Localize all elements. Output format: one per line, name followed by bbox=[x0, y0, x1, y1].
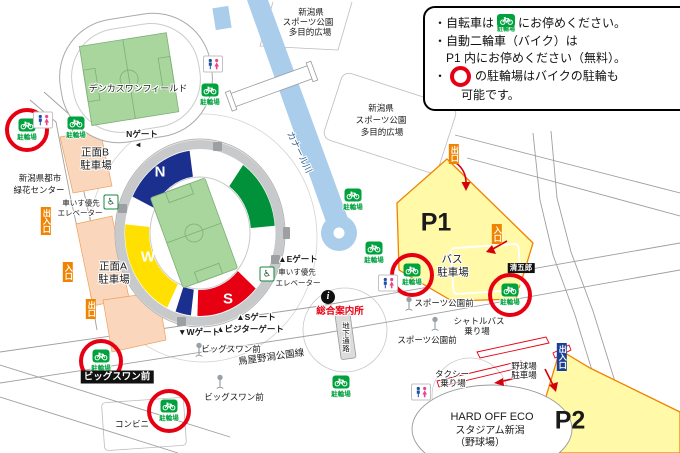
stand-s-letter: S bbox=[223, 291, 233, 308]
bicycle-parking-label: 駐輪場 bbox=[343, 201, 363, 211]
gate-badge: 入口 bbox=[492, 224, 502, 244]
bicycle-parking-icon bbox=[502, 284, 519, 297]
gate-n-label: Nゲート bbox=[126, 128, 158, 140]
gate-badge: 出口 bbox=[86, 299, 96, 319]
eco-stadium-label: （野球場） bbox=[455, 434, 505, 449]
lot-b-label: 駐車場 bbox=[80, 158, 112, 173]
gate-badge: 出入口 bbox=[41, 207, 51, 235]
legend-line2b: P1 内にお停めください（無料）。 bbox=[446, 50, 680, 67]
bicycle-parking-label: 駐輪場 bbox=[364, 254, 384, 264]
restroom-icon bbox=[33, 112, 53, 129]
info-center-label: 総合案内所 bbox=[316, 303, 364, 317]
gate-w-label: ▼Wゲート bbox=[178, 326, 220, 338]
plaza-label: スポーツ公園 bbox=[356, 114, 407, 126]
taxi-label: 乗り場 bbox=[440, 377, 466, 389]
gate-badge: 出入口 bbox=[557, 343, 567, 371]
bus-stop-icon bbox=[216, 375, 225, 390]
elevator-label: エレベーター bbox=[58, 208, 103, 219]
denka-field-label: デンカスワンフィールド bbox=[89, 82, 188, 95]
restroom-icon bbox=[203, 56, 223, 73]
wheelchair-elevator-icon: ♿ bbox=[104, 195, 119, 210]
stand-n-letter: N bbox=[155, 164, 166, 181]
gate-s-label: ▲Sゲート bbox=[236, 311, 276, 323]
gate-n-pointer: ◀ bbox=[136, 142, 141, 149]
bicycle-parking-icon bbox=[161, 400, 178, 413]
gate-badge: 出口 bbox=[449, 144, 459, 164]
elevator-label: 車いす優先 bbox=[278, 267, 316, 278]
bicycle-icon bbox=[497, 14, 515, 27]
greenery-center-label: 新潟県都市 bbox=[19, 172, 62, 184]
bicycle-parking-icon bbox=[68, 117, 85, 130]
baseball-parking-label: 駐車場 bbox=[511, 369, 537, 381]
bicycle-parking-icon: 駐輪場 bbox=[497, 14, 515, 33]
bicycle-parking-label: 駐輪場 bbox=[200, 96, 220, 106]
bus-stop-label: ビッグスワン前 bbox=[201, 343, 261, 355]
red-circle-symbol bbox=[450, 66, 471, 87]
bicycle-parking-label: 駐輪場 bbox=[159, 412, 179, 422]
bus-stop-icon bbox=[431, 317, 440, 332]
legend-box: ・自転車は 駐輪場 にお停めください。 ・自動二輪車（バイク）は P1 内にお停… bbox=[423, 6, 680, 111]
bicycle-parking-label: 駐輪場 bbox=[331, 388, 351, 398]
convenience-store-label: コンビニ bbox=[115, 418, 149, 430]
bicycle-parking-icon bbox=[202, 84, 219, 97]
gate-visitor-label: ▲ビジターゲート bbox=[216, 323, 284, 335]
bicycle-parking-label: 駐輪場 bbox=[402, 276, 422, 286]
information-icon: i bbox=[321, 290, 335, 304]
greenery-center-label: 緑花センター bbox=[13, 184, 64, 196]
p2-label: P2 bbox=[555, 407, 586, 436]
lot-a-label: 駐車場 bbox=[98, 272, 130, 287]
bicycle-parking-icon bbox=[333, 376, 350, 389]
legend-line3a: の駐輪場はバイクの駐輪も bbox=[475, 68, 619, 85]
bus-stop-icon bbox=[405, 297, 414, 312]
bus-stop-label: スポーツ公園前 bbox=[397, 334, 456, 346]
wheelchair-elevator-icon: ♿ bbox=[260, 267, 275, 282]
canal-label: カナール川 bbox=[284, 129, 315, 175]
elevator-label: エレベーター bbox=[276, 278, 321, 289]
bicycle-parking-icon bbox=[366, 242, 383, 255]
bicycle-parking-label: 駐輪場 bbox=[500, 296, 520, 306]
legend-line2a: ・自動二輪車（バイク）は bbox=[434, 33, 680, 50]
gate-e-label: ▲Eゲート bbox=[278, 253, 318, 265]
legend-line3b: 可能です。 bbox=[461, 87, 680, 104]
gate-badge: ビッグスワン前 bbox=[81, 371, 154, 384]
gate-badge: 入口 bbox=[63, 262, 73, 282]
plaza-label: 新潟県 bbox=[368, 102, 394, 114]
shuttle-bus-label: 乗り場 bbox=[464, 325, 490, 337]
bicycle-parking-icon bbox=[404, 264, 421, 277]
bicycle-parking-label: 駐輪場 bbox=[66, 129, 86, 139]
legend-line3-bullet: ・ bbox=[434, 68, 446, 85]
plaza-label: 多目的広場 bbox=[361, 126, 404, 138]
stadium-area-map: 駐輪場駐輪場駐輪場駐輪場駐輪場駐輪場駐輪場駐輪場駐輪場駐輪場♿♿i出入口入口出口… bbox=[0, 0, 680, 453]
stand-e-letter: E bbox=[233, 203, 243, 220]
bicycle-parking-icon bbox=[345, 189, 362, 202]
bicycle-parking-icon bbox=[93, 350, 110, 363]
p1-label: P1 bbox=[421, 209, 452, 238]
plaza-label: 多目的広場 bbox=[289, 26, 332, 38]
underpass-label: 地下通路 bbox=[341, 322, 352, 352]
bicycle-parking-label: 駐輪場 bbox=[17, 131, 37, 141]
restroom-icon bbox=[378, 275, 398, 292]
stand-w-letter: W bbox=[141, 249, 155, 266]
bus-stop-label: ビッグスワン前 bbox=[204, 391, 264, 403]
gate-badge: 清五郎 bbox=[508, 263, 535, 273]
legend-line1-pre: ・自転車は bbox=[434, 15, 494, 32]
bus-parking-label: 駐車場 bbox=[437, 265, 469, 280]
restroom-icon bbox=[411, 384, 431, 401]
bus-stop-label: スポーツ公園前 bbox=[414, 297, 473, 309]
legend-line1-post: にお停めください。 bbox=[518, 15, 626, 32]
